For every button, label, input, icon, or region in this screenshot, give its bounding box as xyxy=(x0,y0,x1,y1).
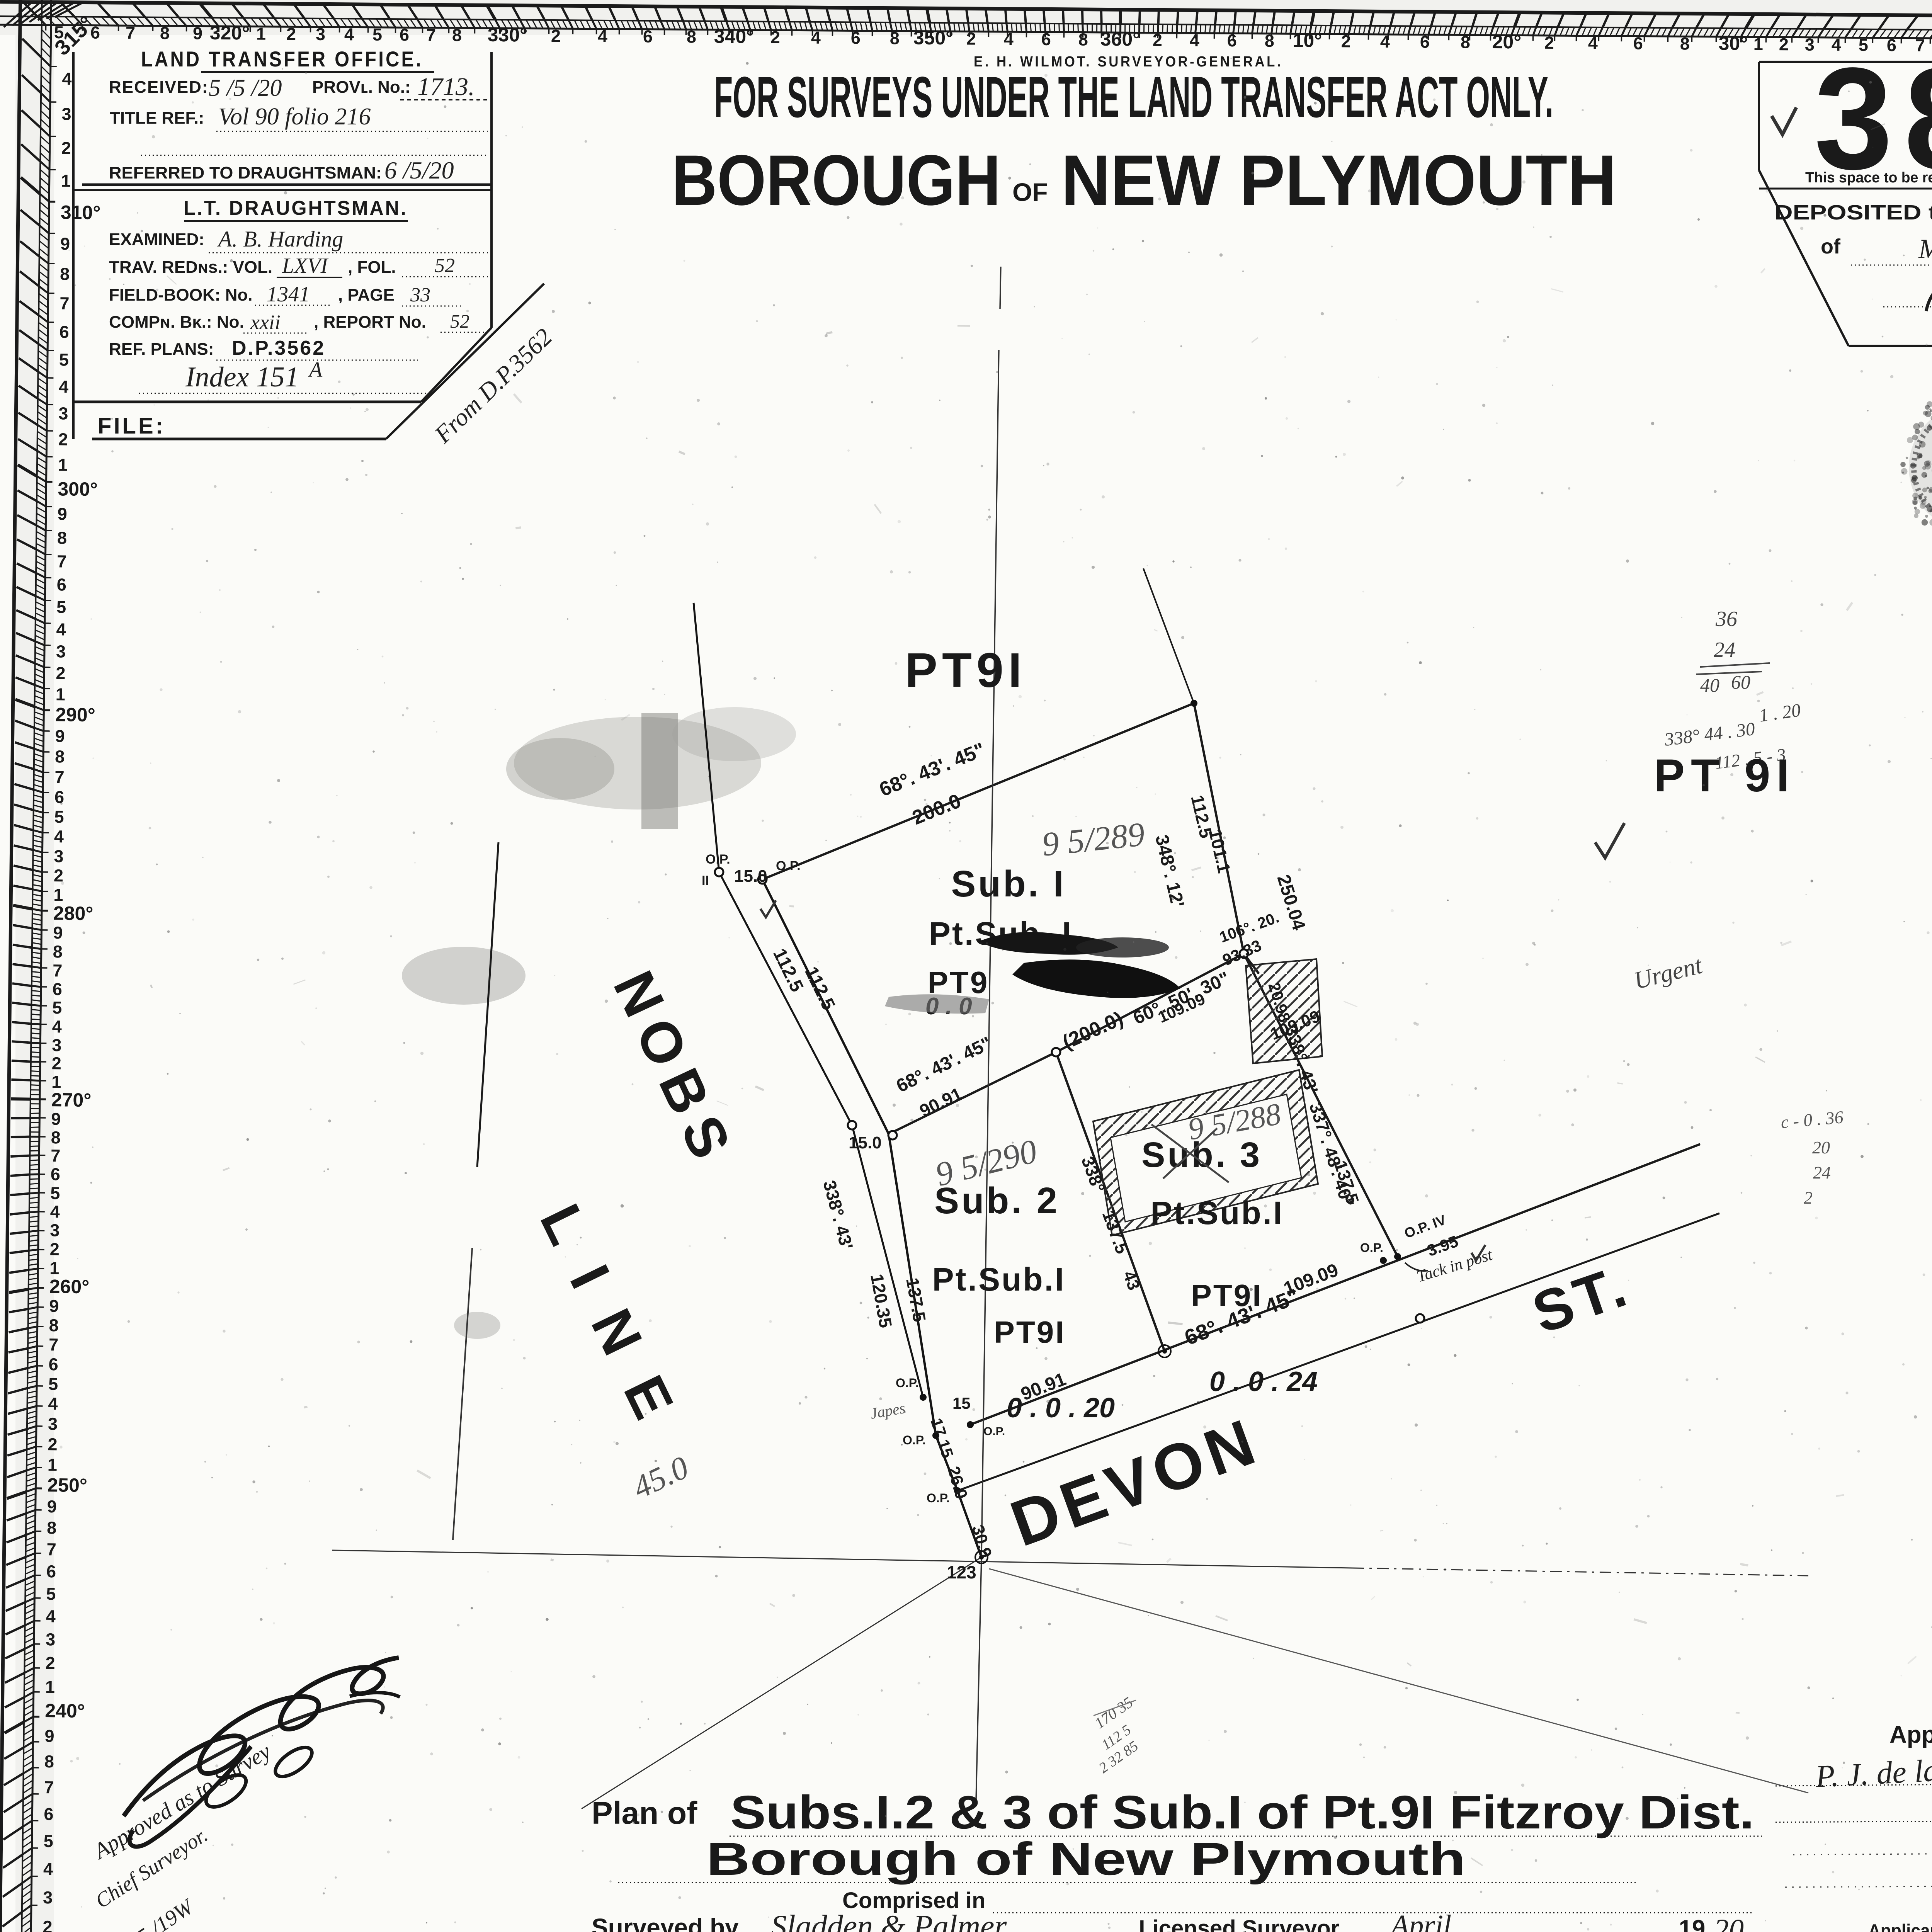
svg-text:5: 5 xyxy=(52,998,62,1017)
svg-text:36: 36 xyxy=(1715,607,1737,631)
svg-text:8: 8 xyxy=(51,1128,61,1147)
svg-text:5: 5 xyxy=(43,1831,53,1851)
svg-text:, Licensed Surveyor,: , Licensed Surveyor, xyxy=(1126,1916,1344,1932)
svg-text:8: 8 xyxy=(1078,29,1088,49)
svg-text:9: 9 xyxy=(47,1497,57,1516)
svg-text:3: 3 xyxy=(50,1220,60,1240)
svg-text:6: 6 xyxy=(59,322,69,342)
svg-text:33: 33 xyxy=(410,284,430,306)
svg-text:7: 7 xyxy=(54,767,65,787)
svg-text:1: 1 xyxy=(45,1677,55,1697)
svg-text:xxii: xxii xyxy=(250,311,281,334)
svg-text:1: 1 xyxy=(1753,34,1763,54)
svg-text:10°: 10° xyxy=(1293,29,1322,51)
svg-text:May: May xyxy=(1918,233,1932,264)
svg-text:52: 52 xyxy=(435,255,455,277)
svg-text:COMPɴ. Bᴋ.: No.: COMPɴ. Bᴋ.: No. xyxy=(109,313,244,332)
svg-text:1: 1 xyxy=(256,24,266,44)
svg-text:2: 2 xyxy=(286,24,296,44)
svg-text:Applicant [or Registered Owner: Applicant [or Registered Owner]. xyxy=(1868,1920,1932,1932)
svg-text:360°: 360° xyxy=(1100,28,1141,50)
svg-text:9: 9 xyxy=(49,1296,59,1316)
svg-text:1: 1 xyxy=(48,1455,58,1475)
svg-text:6: 6 xyxy=(44,1804,54,1824)
svg-text:7: 7 xyxy=(46,1539,56,1559)
svg-text:3: 3 xyxy=(52,1035,62,1055)
svg-text:1: 1 xyxy=(61,171,71,190)
svg-text:April: April xyxy=(1389,1909,1451,1932)
svg-text:7: 7 xyxy=(426,25,436,45)
svg-text:2: 2 xyxy=(770,27,780,47)
svg-text:1: 1 xyxy=(58,455,68,474)
svg-text:9: 9 xyxy=(60,234,70,253)
svg-text:5: 5 xyxy=(372,25,382,44)
svg-text:7: 7 xyxy=(44,1777,54,1797)
svg-text:, 19: , 19 xyxy=(1665,1915,1705,1932)
svg-text:4: 4 xyxy=(43,1859,53,1879)
svg-text:NEW PLYMOUTH: NEW PLYMOUTH xyxy=(1061,141,1617,220)
svg-text:BOROUGH: BOROUGH xyxy=(672,141,1001,220)
svg-text:D.P.3562: D.P.3562 xyxy=(232,337,325,359)
svg-text:8: 8 xyxy=(55,747,65,766)
svg-text:330°: 330° xyxy=(488,24,528,46)
svg-text:7: 7 xyxy=(51,1146,61,1165)
svg-text:6: 6 xyxy=(48,1354,58,1374)
svg-text:PT9I: PT9I xyxy=(905,643,1026,697)
svg-text:LXVI: LXVI xyxy=(282,254,329,278)
svg-text:6: 6 xyxy=(400,25,409,44)
svg-text:REFERRED TO DRAUGHTSMAN:: REFERRED TO DRAUGHTSMAN: xyxy=(109,163,382,182)
svg-text:1: 1 xyxy=(56,684,66,704)
svg-text:320°: 320° xyxy=(210,22,250,44)
svg-text:5: 5 xyxy=(50,1183,60,1203)
svg-text:4: 4 xyxy=(1588,33,1598,53)
svg-text:L.T. DRAUGHTSMAN.: L.T. DRAUGHTSMAN. xyxy=(184,197,408,219)
svg-text:1: 1 xyxy=(51,1072,61,1092)
svg-text:PROVʟ. No.:: PROVʟ. No.: xyxy=(312,78,411,97)
svg-text:2: 2 xyxy=(1779,34,1789,54)
svg-text:350°: 350° xyxy=(913,27,954,49)
svg-text:280°: 280° xyxy=(53,902,94,924)
svg-text:8: 8 xyxy=(1265,31,1274,51)
svg-text:4: 4 xyxy=(62,69,72,88)
svg-text:7: 7 xyxy=(60,293,70,313)
svg-text:290°: 290° xyxy=(55,704,95,726)
svg-text:6: 6 xyxy=(643,27,653,46)
svg-text:1341: 1341 xyxy=(267,282,310,306)
svg-text:240°: 240° xyxy=(45,1700,85,1722)
svg-text:40: 40 xyxy=(1700,674,1719,696)
svg-text:24: 24 xyxy=(1714,638,1735,662)
svg-text:5: 5 xyxy=(46,1584,56,1604)
svg-text:2: 2 xyxy=(1153,30,1162,50)
svg-text:15.0: 15.0 xyxy=(849,1133,882,1152)
svg-text:2: 2 xyxy=(1544,33,1554,53)
svg-text:FIELD-BOOK: No.: FIELD-BOOK: No. xyxy=(109,286,253,304)
svg-text:EXAMINED:: EXAMINED: xyxy=(109,230,204,249)
svg-text:9: 9 xyxy=(193,23,202,43)
svg-text:5: 5 xyxy=(59,350,69,369)
svg-text:20: 20 xyxy=(1714,1913,1744,1932)
svg-text:8: 8 xyxy=(687,27,696,46)
svg-text:II: II xyxy=(702,873,709,888)
svg-text:4: 4 xyxy=(54,827,64,846)
svg-text:6: 6 xyxy=(1633,34,1643,53)
svg-text:DEPOSITED this: DEPOSITED this xyxy=(1774,201,1932,224)
svg-text:2: 2 xyxy=(56,663,66,683)
svg-text:, PAGE: , PAGE xyxy=(338,286,395,304)
svg-text:O.P.: O.P. xyxy=(903,1433,926,1447)
svg-text:4: 4 xyxy=(56,619,66,639)
svg-text:Plan of: Plan of xyxy=(592,1796,697,1831)
svg-text:6: 6 xyxy=(54,787,65,807)
svg-text:Vol 90 folio 216: Vol 90 folio 216 xyxy=(218,104,371,130)
svg-text:4: 4 xyxy=(46,1606,56,1626)
svg-text:8: 8 xyxy=(47,1518,57,1537)
svg-text:3: 3 xyxy=(46,1629,56,1649)
svg-text:6: 6 xyxy=(46,1561,56,1581)
svg-text:4: 4 xyxy=(1190,30,1199,50)
svg-text:2: 2 xyxy=(1804,1188,1813,1207)
svg-text:20: 20 xyxy=(1812,1138,1830,1157)
svg-text:4: 4 xyxy=(344,24,354,44)
svg-text:2: 2 xyxy=(43,1917,53,1932)
svg-text:3: 3 xyxy=(316,24,325,44)
svg-text:RECEIVED:: RECEIVED: xyxy=(109,78,209,97)
svg-text:6: 6 xyxy=(1041,29,1051,49)
svg-text:of: of xyxy=(1821,235,1841,258)
svg-text:9: 9 xyxy=(57,504,67,524)
svg-text:6: 6 xyxy=(851,28,861,48)
svg-text:A: A xyxy=(308,358,323,382)
svg-text:2: 2 xyxy=(61,138,71,158)
svg-text:4: 4 xyxy=(52,1017,62,1036)
svg-text:6: 6 xyxy=(51,1164,61,1184)
svg-text:123: 123 xyxy=(947,1562,976,1582)
svg-text:, REPORT No.: , REPORT No. xyxy=(314,313,426,332)
svg-text:1: 1 xyxy=(49,1258,60,1278)
svg-text:Index 151: Index 151 xyxy=(185,361,299,393)
svg-text:7: 7 xyxy=(53,961,63,980)
svg-text:O.P.: O.P. xyxy=(1360,1241,1383,1255)
svg-text:2: 2 xyxy=(50,1239,60,1259)
svg-text:O.P.: O.P. xyxy=(896,1376,919,1390)
svg-text:9: 9 xyxy=(51,1109,61,1129)
svg-text:20°: 20° xyxy=(1492,31,1521,53)
svg-text:250°: 250° xyxy=(47,1474,87,1496)
svg-text:, FOL.: , FOL. xyxy=(348,258,396,277)
svg-text:4: 4 xyxy=(1004,29,1014,49)
svg-text:7: 7 xyxy=(126,23,135,43)
svg-text:9: 9 xyxy=(55,726,65,746)
svg-text:3: 3 xyxy=(56,641,66,661)
svg-text:This space to be reserved for: This space to be reserved for Deposit No… xyxy=(1805,170,1932,186)
svg-text:6: 6 xyxy=(53,979,63,999)
svg-text:270°: 270° xyxy=(51,1089,92,1111)
svg-text:8: 8 xyxy=(452,25,462,45)
svg-text:5 /5 /20: 5 /5 /20 xyxy=(209,75,282,101)
svg-text:4: 4 xyxy=(811,28,821,48)
svg-text:300°: 300° xyxy=(58,478,98,500)
svg-text:2: 2 xyxy=(52,1053,62,1073)
svg-text:260°: 260° xyxy=(49,1276,89,1298)
svg-text:Approved,: Approved, xyxy=(1889,1721,1932,1748)
svg-text:2: 2 xyxy=(551,26,561,46)
svg-text:8: 8 xyxy=(53,942,63,961)
svg-text:8: 8 xyxy=(160,23,170,43)
svg-text:7: 7 xyxy=(49,1335,59,1354)
svg-text:6: 6 xyxy=(57,575,67,594)
svg-text:60: 60 xyxy=(1731,671,1750,693)
svg-text:0 . 0 . 24: 0 . 0 . 24 xyxy=(1209,1366,1318,1397)
svg-text:O.P.: O.P. xyxy=(776,859,801,873)
svg-text:8: 8 xyxy=(60,264,70,284)
svg-text:310°: 310° xyxy=(61,201,101,223)
svg-text:TRAV. REDɴs.: VOL.: TRAV. REDɴs.: VOL. xyxy=(109,258,272,277)
svg-text:Surveyed by: Surveyed by xyxy=(592,1913,739,1932)
svg-text:6: 6 xyxy=(1420,32,1430,52)
svg-text:4: 4 xyxy=(59,377,69,396)
svg-text:Pt.Sub.I: Pt.Sub.I xyxy=(932,1261,1066,1298)
svg-text:24: 24 xyxy=(1813,1163,1831,1182)
svg-text:6 /5/20: 6 /5/20 xyxy=(384,156,454,184)
svg-text:8: 8 xyxy=(44,1752,54,1771)
svg-text:TITLE REF.:: TITLE REF.: xyxy=(110,109,204,128)
svg-text:Subs.I.2 & 3 of Sub.I of Pt.9I: Subs.I.2 & 3 of Sub.I of Pt.9I Fitzroy D… xyxy=(730,1786,1754,1838)
svg-text:OF: OF xyxy=(1012,178,1048,206)
svg-text:2: 2 xyxy=(45,1653,55,1673)
svg-text:REF. PLANS:: REF. PLANS: xyxy=(109,340,214,359)
svg-text:7: 7 xyxy=(57,551,67,571)
svg-text:FOR SURVEYS UNDER THE LAND TRA: FOR SURVEYS UNDER THE LAND TRANSFER ACT … xyxy=(714,65,1553,129)
svg-text:FILE:: FILE: xyxy=(98,413,165,439)
svg-text:15.0: 15.0 xyxy=(734,867,767,886)
svg-text:6: 6 xyxy=(1227,31,1237,50)
svg-text:2: 2 xyxy=(58,429,68,449)
svg-text:8: 8 xyxy=(890,28,900,48)
svg-text:2: 2 xyxy=(48,1434,58,1454)
svg-text:3: 3 xyxy=(43,1888,53,1907)
svg-text:4: 4 xyxy=(598,26,607,46)
svg-text:Pt.Sub.I: Pt.Sub.I xyxy=(1151,1195,1284,1231)
svg-text:5: 5 xyxy=(56,597,66,617)
svg-text:A. B. Harding: A. B. Harding xyxy=(217,226,343,252)
svg-text:8: 8 xyxy=(49,1315,59,1335)
svg-text:Sub. I: Sub. I xyxy=(951,863,1066,905)
svg-text:8: 8 xyxy=(1461,32,1470,52)
svg-text:5: 5 xyxy=(48,1374,58,1394)
svg-text:PT 9I: PT 9I xyxy=(1654,750,1796,801)
svg-text:O.P.: O.P. xyxy=(983,1425,1005,1438)
svg-text:9: 9 xyxy=(53,923,63,942)
svg-text:3: 3 xyxy=(58,403,68,423)
svg-text:2: 2 xyxy=(1341,31,1351,51)
svg-text:LAND TRANSFER OFFICE.: LAND TRANSFER OFFICE. xyxy=(141,47,423,71)
svg-text:8: 8 xyxy=(57,528,67,548)
svg-text:30°: 30° xyxy=(1718,32,1748,54)
svg-text:9: 9 xyxy=(44,1726,54,1746)
svg-text:15: 15 xyxy=(952,1394,971,1412)
svg-text:4: 4 xyxy=(48,1394,58,1413)
svg-text:O.P.: O.P. xyxy=(706,852,730,867)
svg-text:2: 2 xyxy=(966,29,976,48)
svg-text:52: 52 xyxy=(450,310,469,332)
svg-text:1: 1 xyxy=(53,885,63,905)
svg-text:4: 4 xyxy=(50,1202,60,1221)
svg-text:3: 3 xyxy=(1805,35,1815,54)
svg-text:8: 8 xyxy=(1680,34,1690,53)
svg-text:3: 3 xyxy=(48,1414,58,1434)
svg-text:1713.: 1713. xyxy=(417,73,475,101)
svg-text:Sladden & Palmer: Sladden & Palmer xyxy=(771,1908,1007,1932)
svg-text:4: 4 xyxy=(1380,32,1390,51)
svg-text:PT9I: PT9I xyxy=(994,1315,1066,1349)
svg-text:3: 3 xyxy=(54,846,64,866)
svg-text:Borough of New Plymouth: Borough of New Plymouth xyxy=(706,1833,1466,1885)
svg-text:3: 3 xyxy=(61,104,71,124)
svg-text:340°: 340° xyxy=(714,26,754,48)
svg-text:O.P.: O.P. xyxy=(927,1491,950,1505)
svg-text:5: 5 xyxy=(54,807,64,827)
